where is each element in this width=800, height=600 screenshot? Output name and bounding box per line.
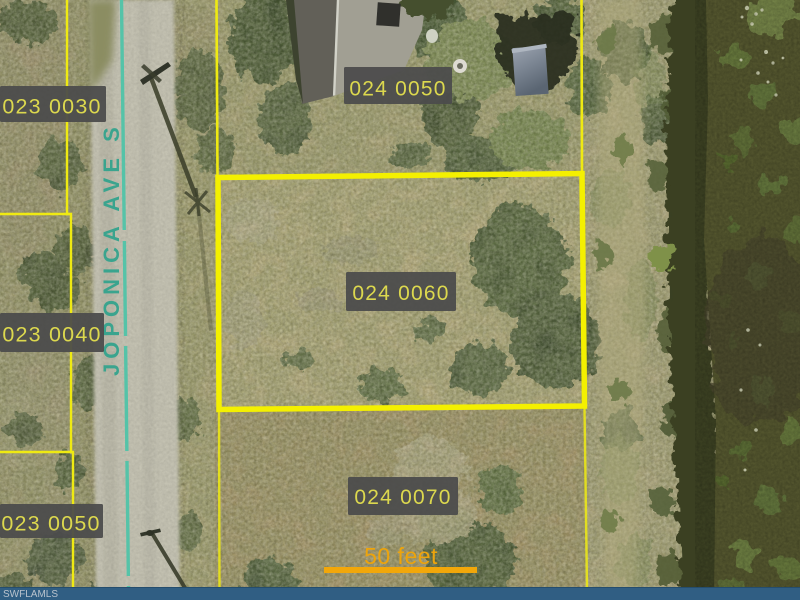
svg-text:50 feet: 50 feet (364, 543, 438, 569)
svg-text:024 0070: 024 0070 (354, 486, 451, 509)
svg-text:023 0030: 023 0030 (2, 95, 101, 119)
svg-text:SWFLAMLS: SWFLAMLS (3, 589, 58, 600)
svg-text:024 0060: 024 0060 (352, 282, 449, 305)
svg-text:023 0040: 023 0040 (2, 323, 101, 347)
svg-text:023 0050: 023 0050 (1, 512, 100, 536)
svg-text:024 0050: 024 0050 (349, 78, 446, 101)
